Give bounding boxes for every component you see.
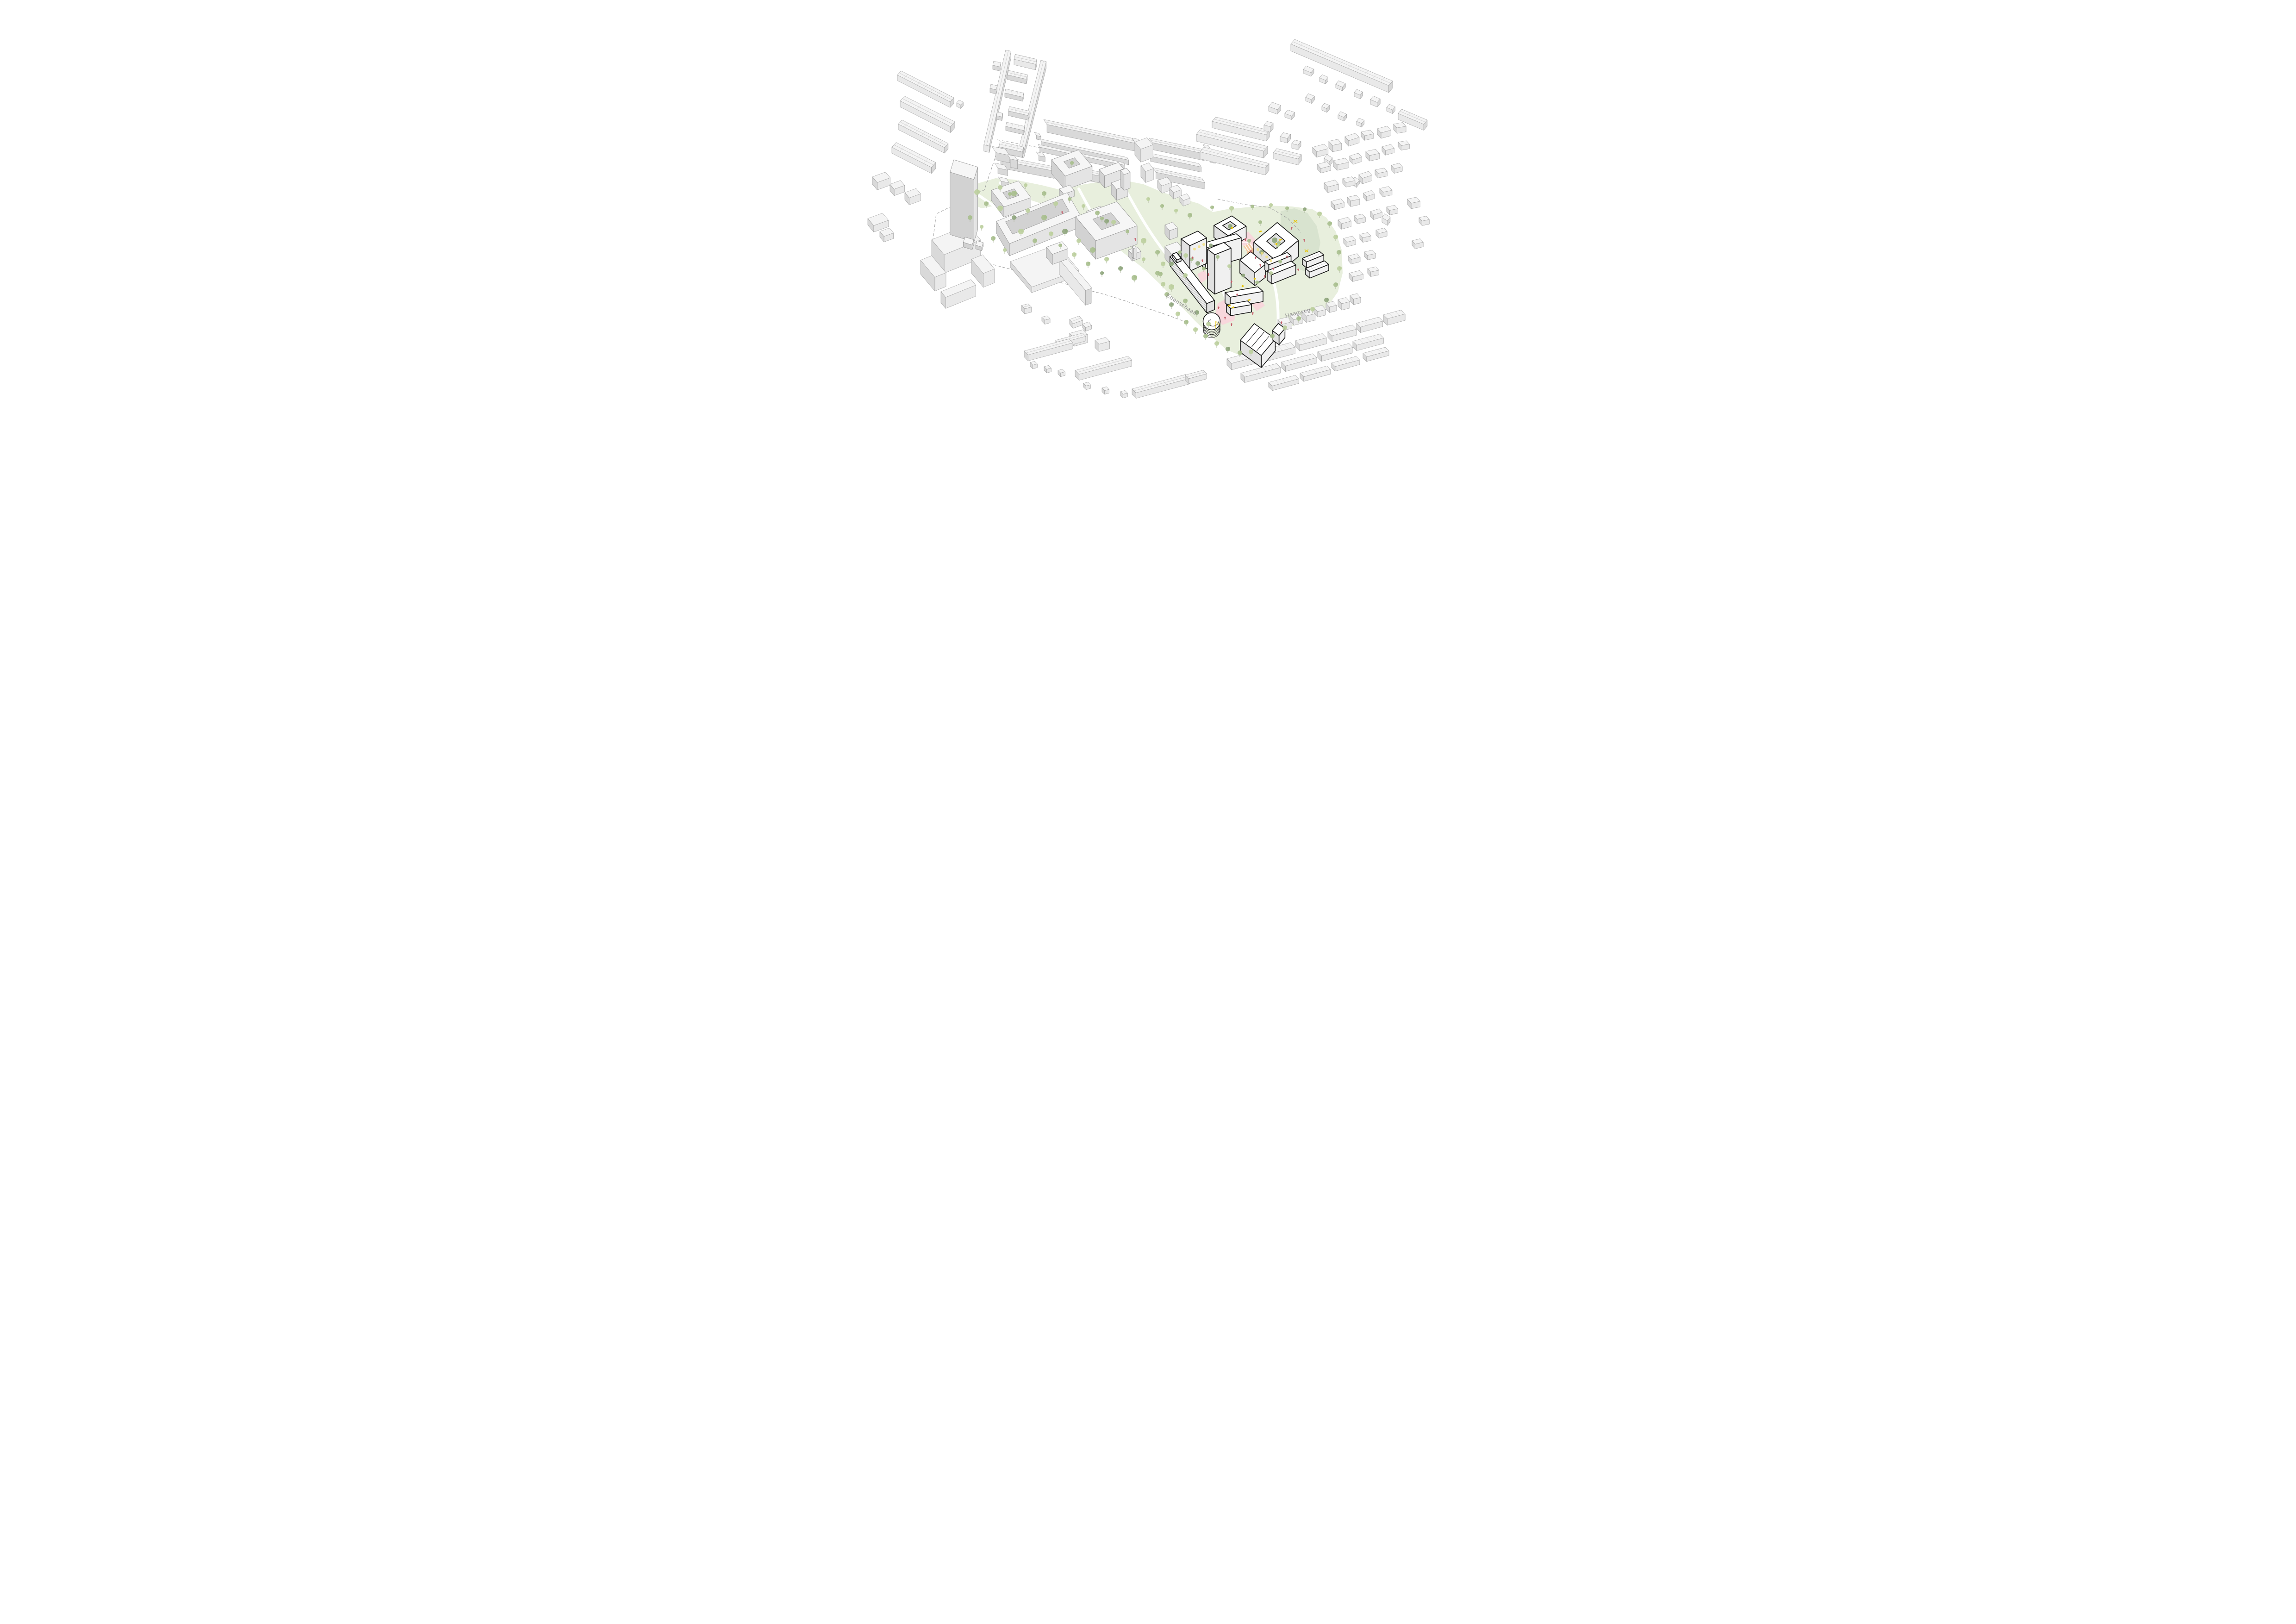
context-building: [1338, 112, 1347, 121]
window-glow: [1198, 245, 1201, 248]
tree-canopy: [1027, 209, 1030, 212]
person-head: [1134, 238, 1135, 239]
context-building: [1328, 325, 1356, 342]
person-figure: [1272, 268, 1273, 270]
tree-canopy: [1284, 326, 1287, 329]
context-building: [1282, 354, 1317, 372]
tree-canopy: [1092, 248, 1095, 251]
tree-canopy: [1157, 250, 1160, 253]
context-building: [1095, 337, 1110, 352]
tree-canopy: [1083, 205, 1085, 206]
tree-canopy: [1044, 215, 1047, 219]
tree-canopy: [1260, 221, 1262, 223]
context-building: [1387, 104, 1395, 113]
window-glow: [1261, 252, 1263, 255]
context-building: [1338, 217, 1351, 229]
context-building: [1394, 123, 1406, 134]
tree-canopy: [1000, 206, 1003, 209]
tree-canopy: [1189, 213, 1192, 216]
tree-canopy: [1205, 334, 1208, 337]
tree-canopy: [1278, 242, 1280, 244]
tree-canopy: [1339, 267, 1342, 269]
person-figure: [1224, 317, 1225, 319]
context-building: [1363, 347, 1389, 362]
context-building: [1356, 118, 1364, 127]
context-building: [1280, 133, 1291, 143]
context-building: [1300, 366, 1331, 381]
context-building: [1391, 163, 1402, 173]
context-building: [1024, 339, 1073, 361]
context-building: [1044, 365, 1051, 373]
tree-canopy: [1208, 322, 1211, 325]
tree-canopy: [1179, 251, 1181, 253]
tree-canopy: [1120, 267, 1123, 269]
person-head: [1236, 294, 1237, 295]
context-building: [905, 188, 921, 205]
tree-canopy: [1101, 217, 1103, 219]
tree-canopy: [1252, 205, 1254, 207]
context-building: [1135, 137, 1153, 162]
person-head: [1201, 260, 1202, 261]
window-glow: [1202, 243, 1205, 246]
context-building: [1350, 294, 1361, 305]
person-head: [1250, 250, 1251, 251]
tree-canopy: [1020, 229, 1024, 232]
tree-canopy: [1227, 347, 1230, 350]
person-head: [1259, 264, 1260, 265]
tree-canopy: [1025, 184, 1027, 186]
context-building: [1383, 310, 1405, 325]
context-building: [1102, 387, 1109, 394]
tree-canopy: [1272, 334, 1275, 337]
tree-canopy: [1171, 285, 1174, 288]
tree-canopy: [1249, 239, 1251, 241]
tree-canopy: [1069, 198, 1071, 200]
campus-building: [1132, 246, 1136, 259]
context-building: [996, 112, 1003, 121]
context-building: [1350, 153, 1362, 164]
context-building: [1368, 267, 1379, 276]
context-building: [1412, 239, 1423, 249]
person-head: [1218, 307, 1219, 308]
tree: [1169, 302, 1174, 309]
tree-canopy: [1186, 320, 1188, 323]
context-building: [1387, 205, 1398, 215]
tree-canopy: [1257, 281, 1258, 283]
tree-canopy: [1162, 205, 1164, 206]
person-head: [1291, 227, 1292, 228]
context-building: [1185, 370, 1207, 384]
tree-canopy: [1143, 238, 1146, 242]
person-figure: [1252, 312, 1253, 315]
tree-canopy: [1280, 260, 1282, 262]
tree-canopy: [1071, 162, 1073, 163]
context-building: [1419, 216, 1429, 226]
tree-canopy: [1101, 272, 1103, 274]
building-face: [1124, 172, 1130, 190]
masterplan-canvas: Ettensebaan Haagweg: [861, 0, 1435, 406]
context-building: [1349, 270, 1363, 281]
context-building: [1364, 250, 1375, 260]
context-building: [1356, 317, 1383, 332]
person-figure: [1236, 294, 1237, 296]
tree-canopy: [1212, 206, 1213, 208]
tree-canopy: [1060, 244, 1062, 246]
tree: [1214, 341, 1219, 348]
new-building: [1207, 243, 1231, 294]
person-head: [1244, 238, 1245, 239]
person-head: [1286, 256, 1287, 257]
context-building: [1382, 214, 1390, 225]
context-building: [1070, 316, 1083, 329]
person-figure: [1218, 307, 1219, 309]
context-building: [1370, 209, 1382, 220]
context-building: [1366, 149, 1380, 161]
context-building: [1363, 190, 1375, 201]
tree-canopy: [1078, 239, 1081, 242]
tree: [1100, 271, 1104, 277]
tree-canopy: [1185, 299, 1188, 302]
tree-canopy: [1335, 283, 1338, 286]
context-building: [1273, 149, 1301, 165]
yellow-dot: [1276, 243, 1277, 245]
context-building: [1269, 375, 1299, 391]
person-head: [1061, 212, 1062, 212]
tree-canopy: [1051, 232, 1053, 235]
context-building: [1058, 369, 1065, 376]
campus-building: [950, 160, 977, 242]
tree-canopy: [1251, 350, 1253, 353]
tree-canopy: [1088, 262, 1090, 265]
window-glow: [1257, 248, 1259, 251]
campus-building: [1120, 168, 1130, 190]
context-building: [1326, 301, 1337, 312]
tree-canopy: [1185, 254, 1188, 256]
person-head: [1207, 274, 1208, 275]
context-building: [1319, 75, 1328, 84]
tree: [980, 225, 983, 231]
context-building: [990, 84, 997, 94]
tree-canopy: [986, 202, 989, 205]
tree: [1072, 252, 1076, 259]
tree-canopy: [1326, 298, 1329, 301]
tree-canopy: [1064, 229, 1068, 232]
tree: [1062, 229, 1068, 236]
context-building: [1377, 126, 1391, 138]
tree-canopy: [977, 190, 980, 193]
tree-canopy: [1231, 206, 1234, 209]
tree: [1003, 248, 1007, 254]
context-building: [1347, 195, 1360, 206]
context-building: [1375, 168, 1387, 178]
window-glow: [1265, 256, 1268, 258]
context-building: [1329, 139, 1342, 152]
tree: [1086, 262, 1090, 268]
person-figure: [1259, 264, 1260, 267]
context-building: [1344, 236, 1356, 247]
tree-canopy: [1160, 272, 1163, 275]
tree-canopy: [1230, 225, 1232, 227]
context-building: [1306, 94, 1314, 103]
person-head: [1252, 312, 1253, 313]
ramp-top: [1203, 313, 1220, 330]
context-building: [1014, 54, 1037, 70]
context-building: [1338, 298, 1350, 310]
context-building: [1348, 254, 1360, 264]
tree-canopy: [1009, 193, 1011, 194]
tree-canopy: [981, 225, 983, 227]
context-building: [971, 255, 995, 287]
context-building: [1006, 122, 1025, 135]
person-figure: [1281, 322, 1282, 324]
tree-canopy: [1274, 238, 1277, 241]
person-head: [1281, 322, 1282, 323]
person-figure: [1264, 275, 1265, 278]
context-building: [1380, 187, 1392, 197]
tree-canopy: [1319, 212, 1322, 215]
context-building: [1313, 144, 1328, 157]
person-figure: [1255, 257, 1256, 259]
accent-d: [1254, 278, 1256, 280]
tree-canopy: [1127, 230, 1129, 232]
tree: [991, 236, 996, 243]
context-building: [890, 181, 905, 196]
context-building: [1141, 163, 1153, 183]
campus-building: [976, 241, 983, 251]
person-figure: [1134, 238, 1135, 241]
person-head: [1231, 324, 1232, 325]
building-face: [1010, 159, 1018, 169]
person-figure: [1061, 212, 1062, 214]
building-face: [1085, 288, 1092, 305]
tree: [1184, 320, 1188, 326]
tree-canopy: [1329, 222, 1332, 225]
context-building: [868, 213, 889, 232]
context-building: [1285, 110, 1295, 119]
tree-canopy: [1134, 275, 1137, 279]
context-building: [1005, 89, 1024, 101]
person-head: [1224, 317, 1225, 318]
tree-canopy: [1163, 262, 1165, 265]
person-head: [1264, 275, 1265, 276]
tree-canopy: [1014, 216, 1016, 219]
person-figure: [1201, 260, 1202, 262]
building-face: [1133, 248, 1136, 259]
person-head: [1297, 269, 1298, 270]
tree-canopy: [1106, 257, 1109, 260]
tree-canopy: [1270, 272, 1272, 274]
accent-d: [1276, 243, 1277, 245]
context-building: [1083, 322, 1092, 331]
window-glow: [1193, 248, 1196, 250]
tree-canopy: [1148, 198, 1150, 200]
tree: [1076, 238, 1081, 245]
tree-canopy: [1097, 211, 1100, 214]
tree-canopy: [1055, 202, 1058, 205]
tree-canopy: [1143, 258, 1145, 260]
yellow-dot: [1242, 285, 1244, 287]
building-face: [974, 167, 977, 242]
tree-canopy: [1304, 208, 1306, 210]
context-building: [1132, 375, 1189, 399]
tree: [1203, 334, 1208, 340]
context-building: [1021, 304, 1032, 314]
accent-d: [1231, 227, 1233, 229]
context-building: [1030, 361, 1037, 369]
tree-canopy: [1074, 253, 1076, 256]
context-building: [1036, 152, 1045, 162]
tree-canopy: [1239, 351, 1242, 354]
context-building: [1264, 121, 1273, 132]
context-building: [1376, 228, 1387, 238]
context-building: [1382, 144, 1394, 155]
tree-canopy: [1338, 250, 1341, 253]
tree-canopy: [1217, 256, 1219, 257]
person-figure: [1231, 281, 1232, 283]
tree: [1210, 206, 1214, 211]
context-building: [1345, 133, 1359, 146]
person-figure: [1250, 250, 1251, 253]
context-building: [1322, 103, 1330, 112]
tree-canopy: [970, 216, 972, 219]
tree-canopy: [1000, 186, 1002, 188]
tree-canopy: [1176, 209, 1177, 211]
yellow-dot: [1254, 278, 1256, 280]
tree-canopy: [1270, 204, 1272, 206]
context-building: [892, 143, 936, 174]
masterplan-stage: Ettensebaan Haagweg: [861, 0, 1435, 406]
context-building: [1317, 162, 1331, 173]
context-building: [1292, 140, 1301, 150]
person-figure: [1286, 256, 1287, 258]
tree-canopy: [1014, 191, 1017, 194]
context-building: [1034, 132, 1041, 140]
tree-canopy: [1177, 312, 1180, 315]
tree: [1226, 347, 1230, 353]
tree-canopy: [1171, 262, 1174, 265]
tree: [1104, 257, 1109, 263]
building-face: [950, 172, 974, 242]
person-figure: [1291, 227, 1292, 230]
tree-canopy: [1277, 244, 1279, 246]
context-building: [1303, 66, 1314, 76]
context-building: [957, 100, 963, 108]
context-building: [1354, 89, 1363, 99]
person-figure: [1297, 269, 1298, 271]
yellow-dot: [1231, 227, 1233, 229]
window-glow: [1269, 259, 1272, 262]
person-head: [1255, 257, 1256, 258]
tree-canopy: [1210, 244, 1212, 246]
tree-canopy: [1034, 239, 1037, 242]
tree-canopy: [1171, 303, 1174, 306]
context-building: [1343, 177, 1355, 187]
person-head: [1303, 239, 1304, 240]
context-building: [1370, 96, 1380, 107]
building-face: [1132, 247, 1133, 259]
person-figure: [1231, 324, 1232, 326]
tree-canopy: [1335, 235, 1338, 238]
context-building: [1332, 356, 1360, 371]
tree-canopy: [1106, 219, 1109, 222]
context-building: [1353, 334, 1383, 351]
context-building: [1398, 141, 1409, 150]
context-building: [1075, 356, 1132, 381]
tree-canopy: [1312, 307, 1315, 310]
context-building: [1120, 390, 1127, 398]
context-building: [1336, 81, 1345, 91]
person-figure: [1207, 274, 1208, 276]
tree-canopy: [1243, 274, 1244, 276]
tree-canopy: [1044, 192, 1046, 194]
tree-canopy: [1197, 262, 1200, 264]
context-building: [1295, 334, 1326, 351]
accent-d: [1242, 285, 1244, 287]
context-building: [1042, 316, 1050, 325]
building-face: [1214, 248, 1231, 294]
person-head: [1192, 257, 1193, 258]
context-building: [872, 172, 890, 190]
context-building: [1407, 197, 1420, 209]
person-figure: [1192, 257, 1193, 259]
tree-canopy: [1185, 274, 1188, 276]
tree-canopy: [993, 237, 996, 239]
tree-canopy: [1287, 207, 1288, 209]
tree-canopy: [1113, 220, 1116, 223]
person-head: [1231, 281, 1232, 282]
tree-canopy: [1004, 249, 1006, 250]
tree: [1176, 312, 1180, 318]
tree: [1132, 275, 1137, 282]
tree: [1118, 266, 1123, 273]
building-face: [1207, 249, 1215, 294]
tree-canopy: [1216, 342, 1219, 344]
context-building: [1360, 232, 1371, 242]
tree: [1193, 327, 1198, 334]
person-head: [1272, 268, 1273, 269]
tree-canopy: [1163, 282, 1165, 285]
context-building: [1007, 70, 1027, 84]
context-building: [1361, 130, 1374, 140]
tree-canopy: [1229, 265, 1231, 267]
context-building: [1331, 199, 1344, 210]
context-building: [1324, 180, 1338, 193]
tree-canopy: [1195, 328, 1198, 331]
context-building: [880, 228, 894, 242]
person-figure: [1303, 239, 1304, 242]
context-building: [993, 61, 1001, 71]
tree-canopy: [1298, 317, 1301, 319]
context-building: [1008, 106, 1029, 120]
context-building: [1359, 171, 1372, 184]
context-building: [1083, 382, 1090, 389]
context-building: [1333, 158, 1349, 170]
building-roof: [1034, 132, 1041, 137]
context-building: [1354, 214, 1365, 224]
tree-canopy: [1203, 267, 1205, 269]
person-figure: [1244, 238, 1245, 241]
context-building: [1269, 102, 1281, 114]
